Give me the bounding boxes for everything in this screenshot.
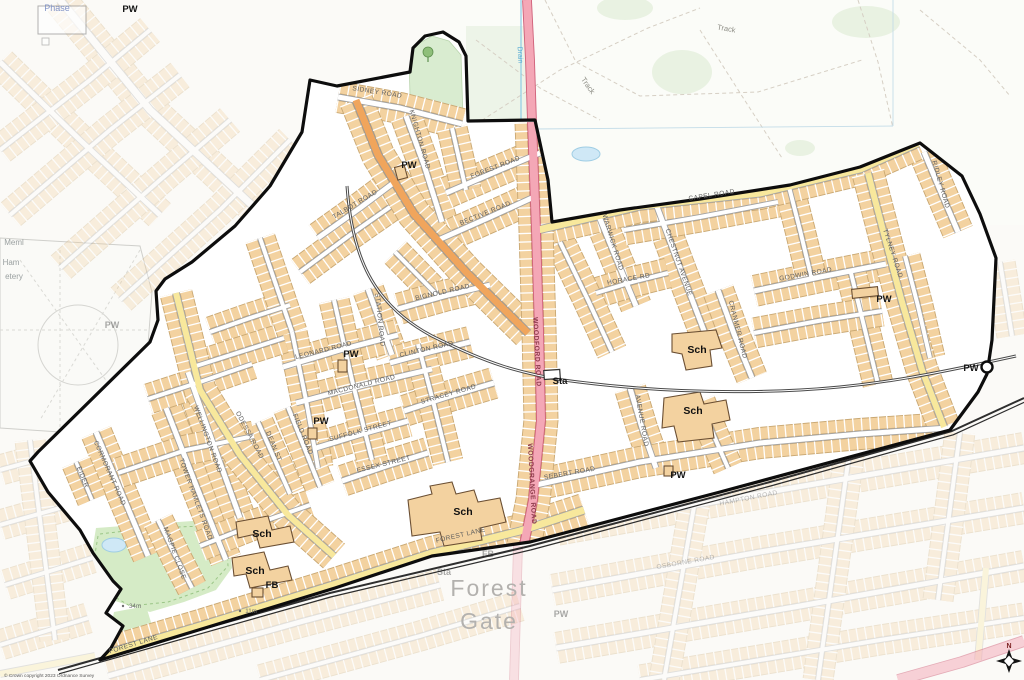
map-viewport[interactable]: SIDNEY ROADKNIGHTON ROADTALBOT ROADFORES… [0, 0, 1024, 680]
compass-diamond [1004, 655, 1015, 667]
label-11m-51: 11m [245, 608, 257, 615]
map-canvas[interactable]: SIDNEY ROADKNIGHTON ROADTALBOT ROADFORES… [0, 0, 1024, 680]
grass-patch [785, 140, 815, 156]
label-pw-40: PW [876, 294, 891, 305]
label-sch-47: Sch [683, 405, 702, 417]
label-etery-61: etery [5, 272, 23, 281]
label-sch-49: Sch [252, 528, 271, 540]
label-meml-59: Meml [4, 238, 24, 247]
label-ham-60: Ham [3, 258, 20, 267]
label-gate-54: Gate [460, 608, 518, 634]
attribution-text: © Crown copyright 2023 Ordnance Survey [4, 674, 94, 679]
label-sta-63: Sta [437, 567, 452, 577]
place-of-worship-building [308, 428, 317, 439]
label-sta-44: Sta [553, 376, 569, 387]
spot-height-dot [122, 605, 124, 607]
label-forest-53: Forest [450, 575, 527, 601]
small-building [42, 38, 49, 45]
label-pw-41: PW [670, 470, 685, 481]
grass-patch [652, 50, 712, 94]
tree-icon [423, 47, 433, 57]
boundary-bump [982, 362, 993, 373]
label-sch-50: Sch [245, 565, 264, 577]
park-pond [102, 538, 126, 552]
label-pw-62: PW [105, 320, 120, 330]
label-phase-58: Phase [44, 3, 70, 13]
label-pw-38: PW [343, 349, 358, 360]
road-fills [527, 0, 532, 122]
label-34m-52: 34m [129, 603, 141, 610]
label-pw-64: PW [554, 609, 569, 619]
label-fb-65: FB [482, 549, 494, 559]
label-drain-57: Drain [516, 46, 524, 63]
place-of-worship-building [338, 360, 347, 372]
pond [572, 147, 600, 161]
label-sch-46: Sch [687, 344, 706, 356]
grass-patch [832, 6, 900, 38]
spot-height-dot [239, 610, 241, 612]
label-pw-37: PW [401, 160, 416, 171]
label-pw-42: PW [963, 363, 978, 374]
label-pw-43: PW [122, 4, 137, 15]
label-n-66: N [1006, 643, 1011, 650]
woodford-road-north [527, 0, 532, 122]
label-pw-39: PW [313, 416, 328, 427]
green-wash [466, 26, 528, 120]
label-fb-45: FB [266, 580, 279, 591]
place-of-worship-building [852, 287, 879, 299]
label-sch-48: Sch [453, 506, 472, 518]
fb-building [252, 588, 263, 597]
